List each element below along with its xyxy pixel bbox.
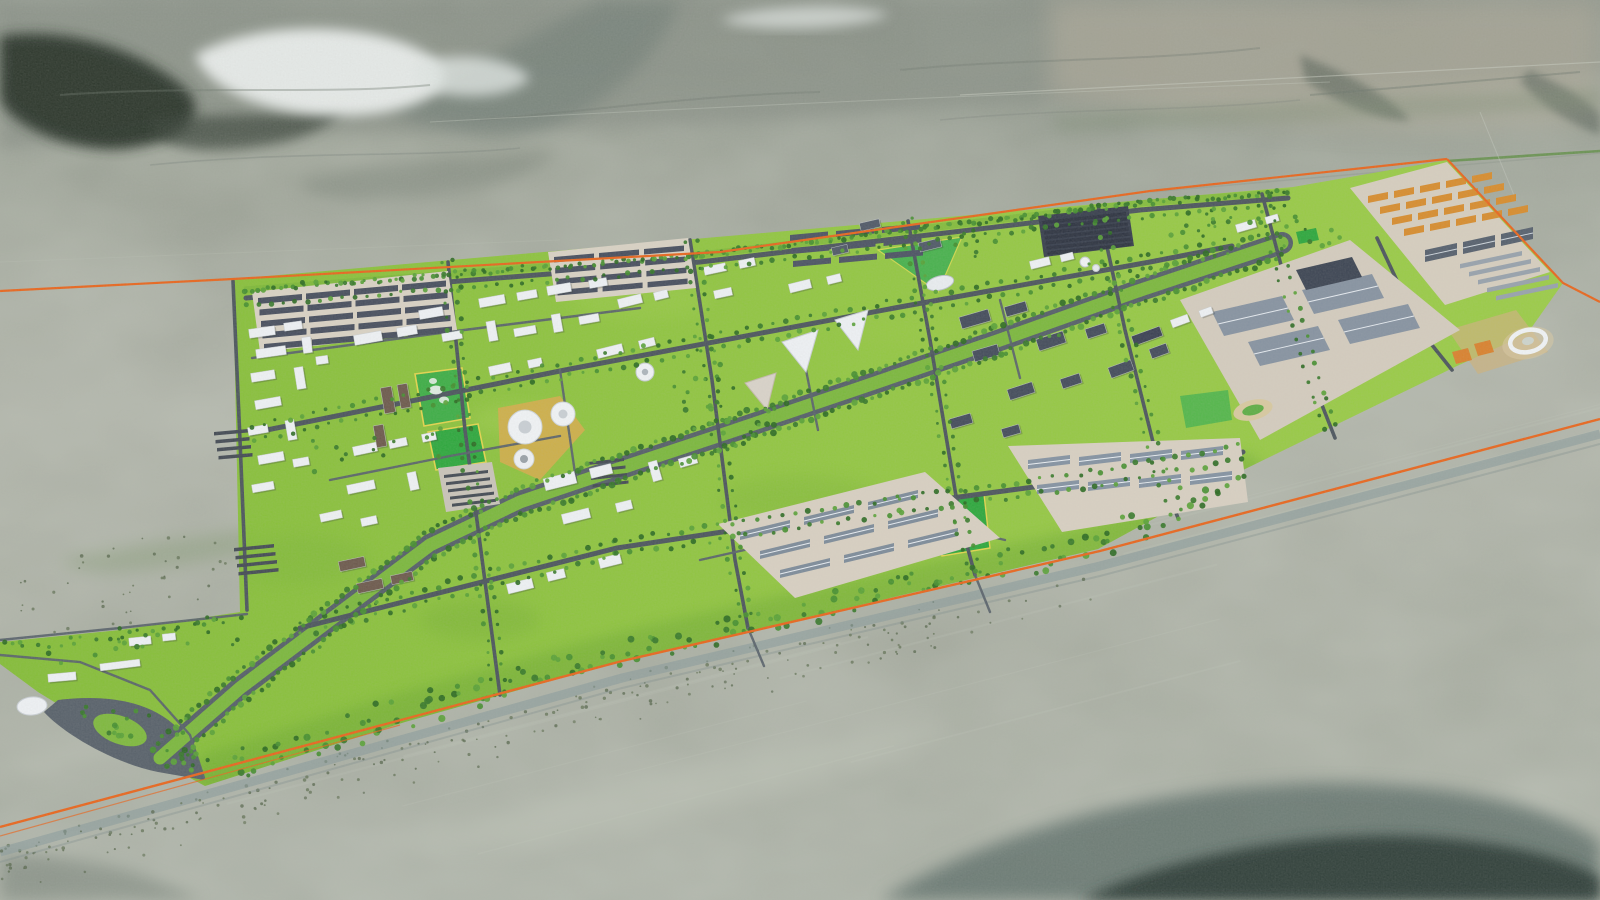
masterplan-3d-viewport[interactable]	[0, 0, 1600, 900]
film-grain-overlay	[0, 0, 1600, 900]
grain-noise	[0, 0, 1600, 900]
